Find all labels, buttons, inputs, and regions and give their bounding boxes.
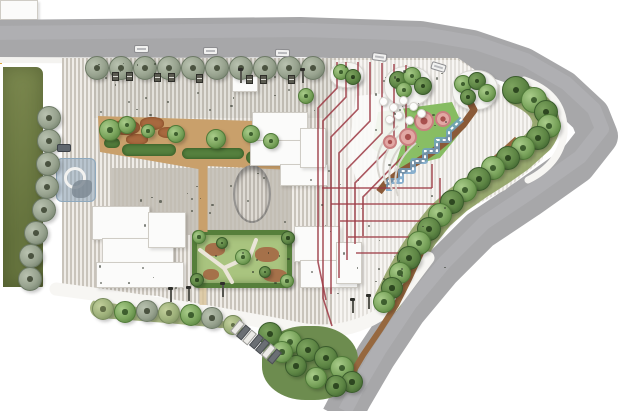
texture-speck	[361, 208, 362, 209]
texture-speck	[230, 185, 232, 187]
garden-trees-tree	[118, 116, 136, 134]
lamp-post	[170, 289, 172, 302]
tree-center	[142, 65, 148, 71]
texture-speck	[191, 210, 193, 212]
tree-center	[100, 306, 105, 311]
tree-center	[44, 184, 50, 190]
island-b-tree	[460, 89, 476, 105]
tree-center	[166, 65, 172, 71]
texture-speck	[378, 268, 380, 270]
texture-speck	[394, 76, 396, 78]
court-trees-tree	[280, 274, 294, 288]
street-tree	[19, 244, 43, 268]
red-route-1	[323, 62, 346, 326]
texture-speck	[137, 64, 138, 65]
tree-center	[476, 176, 482, 182]
red-route-2	[331, 62, 358, 294]
street-tree	[205, 56, 229, 80]
rack-bar	[197, 78, 202, 79]
tree-center	[339, 70, 343, 74]
tree-center	[269, 139, 273, 143]
tree-center	[286, 236, 289, 239]
tree-center	[197, 235, 200, 238]
rack-bar	[155, 77, 160, 78]
texture-speck	[328, 170, 330, 172]
texture-speck	[434, 125, 435, 126]
tree-center	[249, 132, 253, 136]
texture-speck	[375, 93, 378, 96]
garden-trees-tree	[167, 125, 185, 143]
texture-speck	[394, 113, 395, 114]
court-trees-tree	[192, 230, 206, 244]
texture-speck	[431, 195, 433, 197]
tree-center	[475, 79, 479, 83]
street-tree	[37, 106, 61, 130]
bottom-row-tree	[158, 302, 180, 324]
tree-center	[449, 199, 455, 205]
spiral-water-feature	[56, 158, 96, 202]
canopy-umbrella	[385, 115, 394, 124]
tree-center	[293, 363, 298, 368]
court-trees-tree	[235, 249, 251, 265]
tree-center	[241, 255, 245, 259]
play-mound	[399, 128, 417, 146]
rack-bar	[261, 79, 266, 80]
texture-speck	[98, 64, 100, 66]
right-band-tree	[373, 291, 395, 313]
tree-center	[166, 310, 171, 315]
tree-center	[264, 271, 267, 274]
se-cluster-tree	[325, 375, 347, 397]
rack-bar	[127, 76, 132, 77]
texture-speck	[383, 80, 385, 82]
tree-center	[461, 82, 465, 86]
bottom-row-tree	[136, 300, 158, 322]
tree-center	[339, 365, 345, 371]
rack-bar	[113, 76, 118, 77]
court-trees-tree	[190, 273, 204, 287]
red-route-3	[339, 62, 370, 278]
texture-speck	[403, 70, 405, 72]
bike-rack	[260, 75, 267, 84]
texture-speck	[99, 265, 101, 267]
texture-speck	[153, 277, 154, 278]
tree-center	[304, 94, 308, 98]
rack-bar	[169, 77, 174, 78]
tree-center	[125, 123, 129, 127]
texture-speck	[159, 200, 161, 202]
texture-speck	[436, 77, 438, 79]
lamp-head	[300, 68, 305, 71]
car-windshield	[278, 52, 287, 54]
texture-speck	[441, 73, 442, 74]
lamp-post	[240, 70, 242, 83]
bike-rack	[196, 74, 203, 83]
tree-center	[410, 74, 414, 78]
tree-center	[426, 226, 432, 232]
parked-car	[203, 47, 218, 55]
tree-center	[286, 65, 292, 71]
garden-trees-tree	[263, 133, 279, 149]
tree-center	[146, 129, 149, 132]
tree-center	[485, 91, 489, 95]
garden-trees-tree	[141, 124, 155, 138]
tree-center	[262, 65, 268, 71]
bike-rack	[288, 75, 295, 84]
island-a-tree	[414, 77, 432, 95]
lamp-head	[366, 294, 371, 297]
tree-center	[46, 138, 52, 144]
garden-trees-tree	[298, 88, 314, 104]
tree-center	[490, 165, 496, 171]
tree-center	[27, 276, 33, 282]
texture-speck	[368, 225, 370, 227]
canopy-umbrella	[399, 96, 408, 105]
tree-center	[349, 379, 354, 384]
tree-center	[381, 299, 386, 304]
texture-speck	[128, 282, 130, 284]
tree-center	[535, 135, 541, 141]
parked-car-dark	[57, 144, 71, 152]
lamp-head	[238, 68, 243, 71]
tree-center	[520, 145, 526, 151]
red-route-0	[318, 62, 337, 300]
texture-speck	[337, 293, 338, 294]
tree-center	[406, 255, 412, 261]
tree-center	[513, 87, 520, 94]
texture-speck	[149, 114, 151, 116]
texture-speck	[340, 184, 341, 185]
texture-speck	[357, 267, 358, 268]
garden-trees-tree	[242, 125, 260, 143]
tree-center	[505, 155, 511, 161]
tree-center	[190, 65, 196, 71]
tree-center	[285, 279, 288, 282]
tree-center	[546, 123, 552, 129]
rack-bar	[289, 79, 294, 80]
texture-speck	[385, 77, 386, 78]
tree-center	[389, 285, 394, 290]
canopy-umbrella	[405, 116, 414, 125]
rack-bar	[247, 79, 252, 80]
tree-center	[416, 240, 422, 246]
court-trees-tree	[281, 231, 295, 245]
lamp-head	[220, 282, 225, 285]
bottom-row-tree	[92, 298, 114, 320]
texture-speck	[432, 114, 434, 116]
car-windshield	[434, 65, 443, 70]
tree-center	[466, 95, 470, 99]
texture-speck	[145, 97, 147, 99]
site-plan-canvas: Residential landscape master plan (site …	[0, 0, 640, 411]
tree-center	[94, 65, 100, 71]
street-tree	[32, 198, 56, 222]
texture-speck	[401, 275, 403, 277]
street-tree	[24, 221, 48, 245]
tree-center	[107, 127, 112, 132]
bottom-row-tree	[180, 304, 202, 326]
tree-center	[28, 253, 34, 259]
texture-speck	[120, 71, 121, 72]
canopy-umbrella	[417, 109, 426, 118]
tree-center	[421, 84, 425, 88]
tree-center	[195, 278, 198, 281]
bike-rack	[168, 73, 175, 82]
tree-center	[531, 97, 537, 103]
bike-rack	[126, 72, 133, 81]
play-mound	[435, 111, 451, 127]
texture-speck	[154, 63, 156, 65]
tree-center	[174, 132, 178, 136]
garden-trees-tree	[206, 129, 226, 149]
parked-car	[275, 49, 290, 57]
lamp-post	[188, 288, 190, 301]
texture-speck	[115, 84, 116, 85]
bike-rack	[154, 73, 161, 82]
texture-speck	[247, 200, 249, 202]
tree-center	[209, 315, 214, 320]
street-tree	[35, 175, 59, 199]
tree-center	[310, 65, 316, 71]
tree-center	[144, 308, 149, 313]
texture-speck	[311, 271, 313, 273]
tree-center	[122, 309, 127, 314]
tree-center	[267, 331, 273, 337]
tree-center	[118, 65, 124, 71]
texture-speck	[211, 204, 213, 206]
lamp-head	[186, 286, 191, 289]
texture-speck	[197, 92, 199, 94]
tree-center	[214, 137, 219, 142]
court-trees-tree	[259, 266, 271, 278]
tree-center	[33, 230, 39, 236]
texture-speck	[167, 101, 168, 102]
texture-speck	[287, 258, 290, 261]
parked-car	[134, 45, 149, 53]
lamp-head	[350, 298, 355, 301]
tree-center	[305, 347, 311, 353]
car-windshield	[137, 48, 146, 50]
street-tree	[36, 152, 60, 176]
tree-center	[323, 355, 329, 361]
tree-center	[402, 88, 406, 92]
texture-speck	[105, 77, 107, 79]
tree-center	[45, 161, 51, 167]
island-b-tree	[478, 84, 496, 102]
lamp-head	[168, 287, 173, 290]
lamp-post	[302, 70, 304, 83]
tree-center	[188, 312, 193, 317]
courtyard-path-branch	[224, 268, 232, 282]
tree-center	[333, 383, 338, 388]
texture-speck	[284, 221, 286, 223]
bottom-row-tree	[114, 301, 136, 323]
car-windshield	[206, 50, 215, 52]
play-mound	[383, 135, 397, 149]
lamp-post	[368, 296, 370, 309]
court-trees-tree	[216, 237, 228, 249]
tree-center	[46, 115, 52, 121]
canopy-umbrella	[409, 102, 418, 111]
car-windshield	[375, 55, 384, 58]
texture-speck	[252, 271, 253, 272]
se-cluster-tree	[305, 367, 327, 389]
bike-rack	[112, 72, 119, 81]
canopy-umbrella	[379, 97, 388, 106]
tree-center	[221, 242, 224, 245]
tree-center	[214, 65, 220, 71]
lamp-post	[222, 284, 224, 297]
tree-center	[462, 187, 468, 193]
street-tree	[18, 267, 42, 291]
bike-rack	[246, 75, 253, 84]
tree-center	[313, 375, 318, 380]
texture-speck	[375, 281, 376, 282]
lamp-post	[352, 300, 354, 313]
tree-center	[41, 207, 47, 213]
spiral-pool	[72, 180, 92, 198]
tree-center	[396, 78, 400, 82]
tree-center	[437, 212, 443, 218]
bottom-row-tree	[201, 307, 223, 329]
texture-speck	[144, 224, 146, 226]
